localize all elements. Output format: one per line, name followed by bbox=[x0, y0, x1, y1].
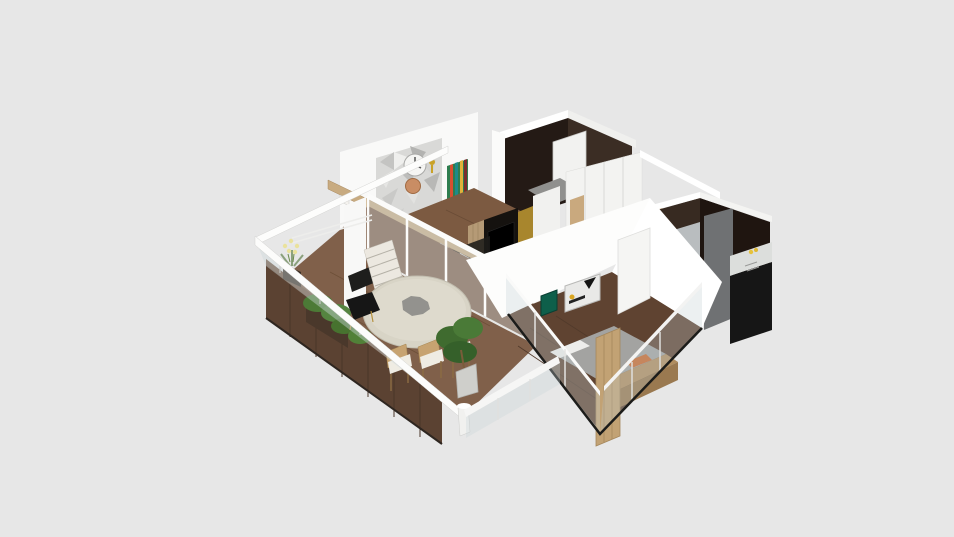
floorplan-3d-viewport[interactable] bbox=[0, 0, 954, 537]
floorplan-render bbox=[0, 0, 954, 537]
shadowbox-dot bbox=[570, 295, 575, 300]
potted-plant-foliage bbox=[453, 317, 483, 339]
kitchen-counter-front bbox=[730, 262, 772, 344]
hallway-wall-cap bbox=[640, 150, 720, 199]
flower-stem bbox=[293, 254, 294, 262]
flower bbox=[293, 250, 297, 254]
stair-wall bbox=[344, 197, 366, 312]
copper-disc bbox=[406, 179, 421, 194]
flower bbox=[283, 244, 287, 248]
lemon bbox=[754, 248, 758, 252]
flower bbox=[289, 239, 293, 243]
flower bbox=[295, 244, 299, 248]
flower-stem bbox=[288, 254, 290, 262]
flower bbox=[287, 249, 291, 253]
potted-plant-foliage bbox=[443, 341, 477, 363]
lemon bbox=[749, 250, 753, 254]
